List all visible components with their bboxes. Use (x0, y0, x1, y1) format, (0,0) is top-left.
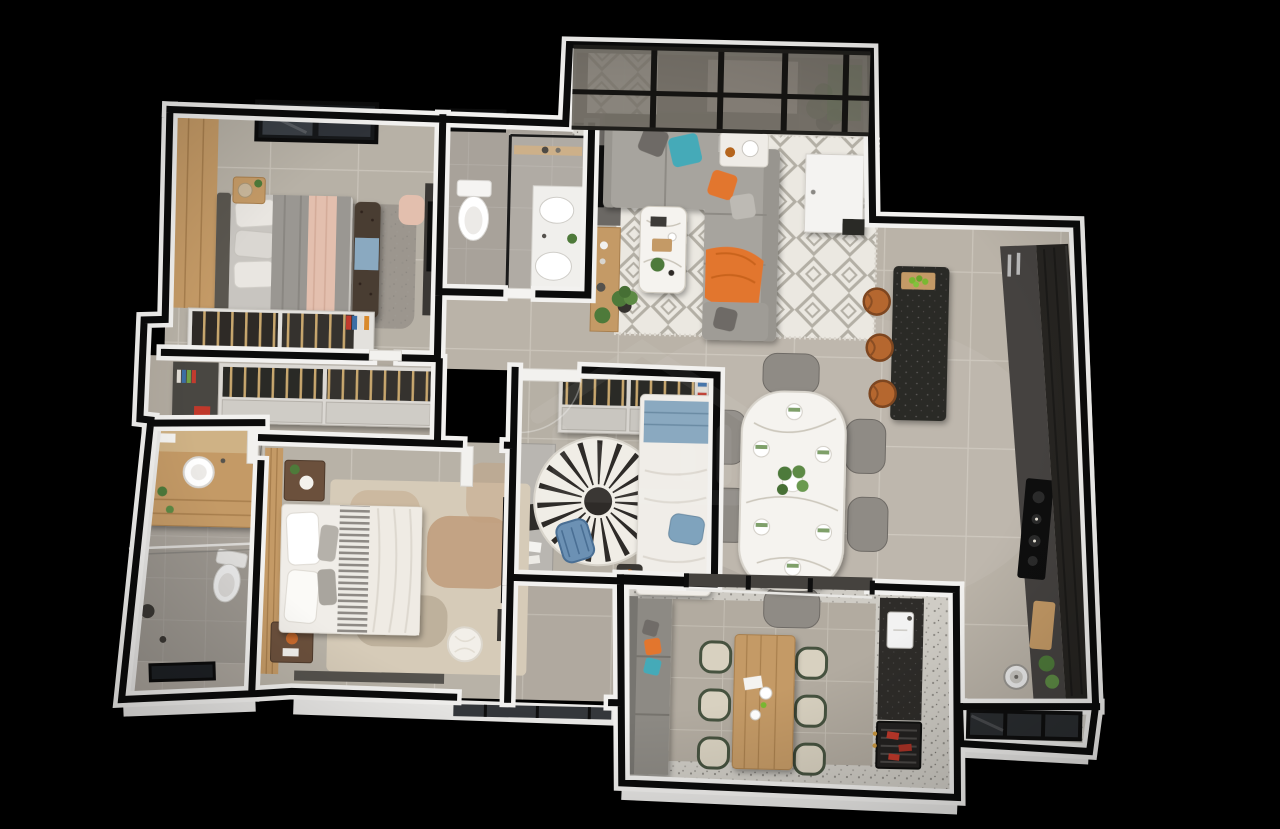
floor-plan-render (0, 0, 1280, 829)
floor-plan-canvas (0, 0, 1280, 829)
plan (71, 8, 1159, 822)
watermark-base (548, 494, 736, 498)
vignette (71, 8, 1159, 822)
